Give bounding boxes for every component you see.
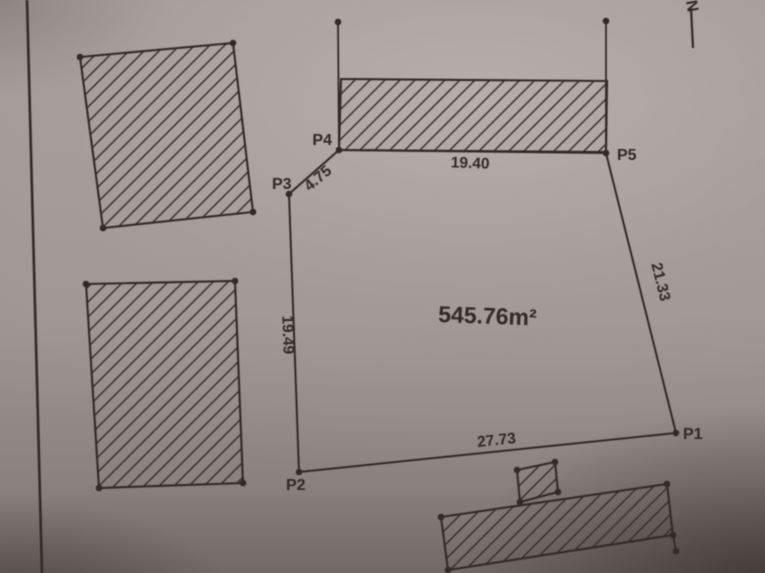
building-top-left-corner-dot [230,40,237,47]
building-top-left-corner-dot [77,54,84,61]
building-top-left [80,43,253,228]
building-top-left-corner-dot [250,209,257,216]
building-mid-left-corner-dot [83,281,90,288]
vertex-label-P5: P5 [617,147,637,164]
plan-drawing: P1P2P3P4P519.4021.3327.7319.494.75545.76… [0,0,765,573]
stub-bottom-right-end-dot [673,548,680,555]
tie-line-left [338,22,339,150]
survey-plan-photo: P1P2P3P4P519.4021.3327.7319.494.75545.76… [0,0,765,573]
dimension-label-P1-P2: 27.73 [476,430,517,451]
building-bottom-corner-dot [664,481,671,488]
building-small-square-corner-dot [552,459,559,466]
building-mid-left-corner-dot [232,278,239,285]
tie-line-right-end-dot [603,18,610,25]
building-mid-left-corner-dot [96,485,103,492]
dimension-label-P5-P1: 21.33 [647,261,673,303]
dimension-label-P2-P3: 19.49 [278,315,296,355]
vertex-label-P2: P2 [286,477,306,494]
vertex-dot-P4 [336,147,343,154]
sheet-border-line [27,0,42,573]
north-arrow-line [691,8,693,48]
building-bottom [441,484,673,570]
building-top-left-corner-dot [100,225,107,232]
vertex-dot-P5 [603,150,610,157]
building-bottom-corner-dot [445,567,452,573]
tie-line-left-end-dot [335,19,342,26]
vertex-label-P1: P1 [683,426,703,443]
building-small-square-corner-dot [514,467,521,474]
vertex-label-P3: P3 [272,176,292,193]
vertex-dot-P1 [673,430,680,437]
building-small-square [517,462,558,502]
north-label: N [682,0,701,13]
vertex-label-P4: P4 [312,132,332,149]
building-mid-left-corner-dot [240,480,247,487]
dimension-label-P3-P4: 4.75 [301,162,335,195]
vertex-dot-P2 [296,469,303,476]
building-small-square-corner-dot [555,489,562,496]
building-top-strip [339,79,607,152]
parcel-area-label: 545.76m² [438,301,538,330]
building-bottom-corner-dot [438,514,445,521]
building-mid-left [86,281,243,488]
dimension-label-P4-P5: 19.40 [450,154,489,172]
